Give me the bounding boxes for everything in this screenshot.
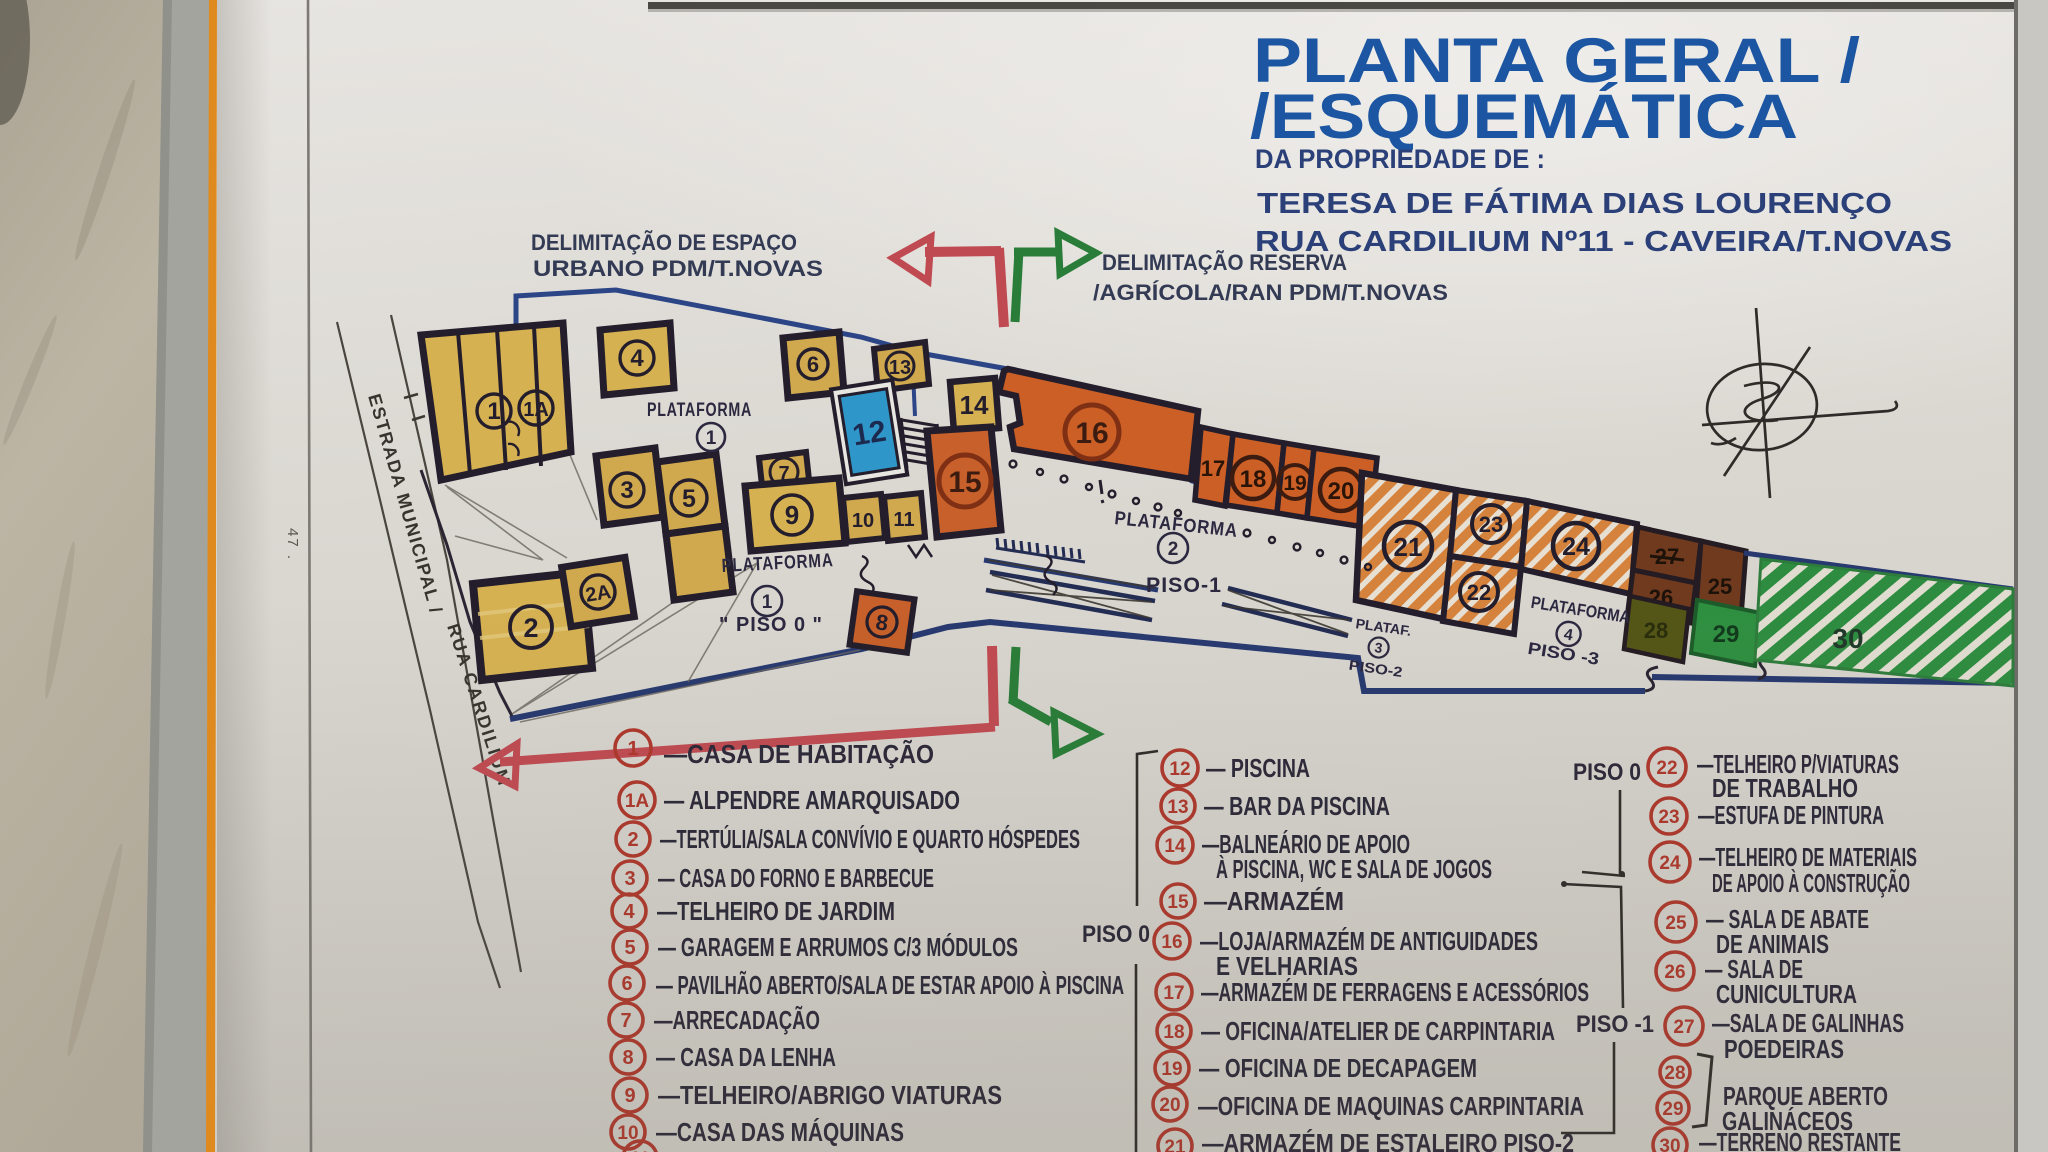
svg-text:11: 11 — [893, 509, 914, 531]
svg-text:URBANO PDM/T.NOVAS: URBANO PDM/T.NOVAS — [533, 256, 823, 281]
svg-text:1: 1 — [706, 428, 717, 449]
svg-text:10: 10 — [852, 510, 874, 532]
svg-text:14: 14 — [960, 390, 989, 420]
svg-text:18: 18 — [1240, 466, 1267, 493]
svg-text:1: 1 — [487, 398, 500, 425]
svg-text:DELIMITAÇÃO DE ESPAÇO: DELIMITAÇÃO DE ESPAÇO — [531, 230, 797, 255]
svg-text:4: 4 — [630, 345, 644, 372]
svg-text:DELIMITAÇÃO RESERVA: DELIMITAÇÃO RESERVA — [1102, 250, 1347, 275]
svg-text:47 .: 47 . — [284, 528, 301, 561]
svg-text:21: 21 — [1394, 532, 1423, 562]
svg-text:/ESQUEMÁTICA: /ESQUEMÁTICA — [1250, 82, 1798, 152]
svg-text:16: 16 — [1075, 417, 1108, 450]
svg-text:25: 25 — [1708, 574, 1732, 599]
svg-text:20: 20 — [1328, 478, 1355, 505]
svg-text:5: 5 — [682, 485, 696, 513]
svg-text:DA PROPRIEDADE DE :: DA PROPRIEDADE DE : — [1255, 144, 1545, 174]
svg-text:RUA CARDILIUM Nº11 - CAVEIRA/T: RUA CARDILIUM Nº11 - CAVEIRA/T.NOVAS — [1255, 226, 1952, 258]
svg-text:3: 3 — [620, 477, 633, 504]
svg-text:TERESA DE FÁTIMA DIAS LOURENÇO: TERESA DE FÁTIMA DIAS LOURENÇO — [1257, 186, 1892, 220]
svg-text:2: 2 — [1168, 539, 1179, 560]
svg-text:17: 17 — [1201, 456, 1225, 481]
svg-text:9: 9 — [785, 500, 799, 530]
svg-text:/AGRÍCOLA/RAN PDM/T.NOVAS: /AGRÍCOLA/RAN PDM/T.NOVAS — [1093, 280, 1448, 305]
svg-text:6: 6 — [807, 352, 819, 377]
svg-text:1A: 1A — [523, 399, 549, 421]
svg-text:15: 15 — [948, 466, 981, 499]
svg-text:PLATAFORMA: PLATAFORMA — [647, 400, 752, 421]
svg-text:PISO-1: PISO-1 — [1146, 574, 1222, 597]
svg-text:24: 24 — [1562, 533, 1590, 561]
svg-text:13: 13 — [889, 357, 911, 379]
svg-text:23: 23 — [1479, 512, 1503, 537]
svg-text:12: 12 — [850, 415, 888, 453]
svg-text:19: 19 — [1283, 472, 1306, 495]
